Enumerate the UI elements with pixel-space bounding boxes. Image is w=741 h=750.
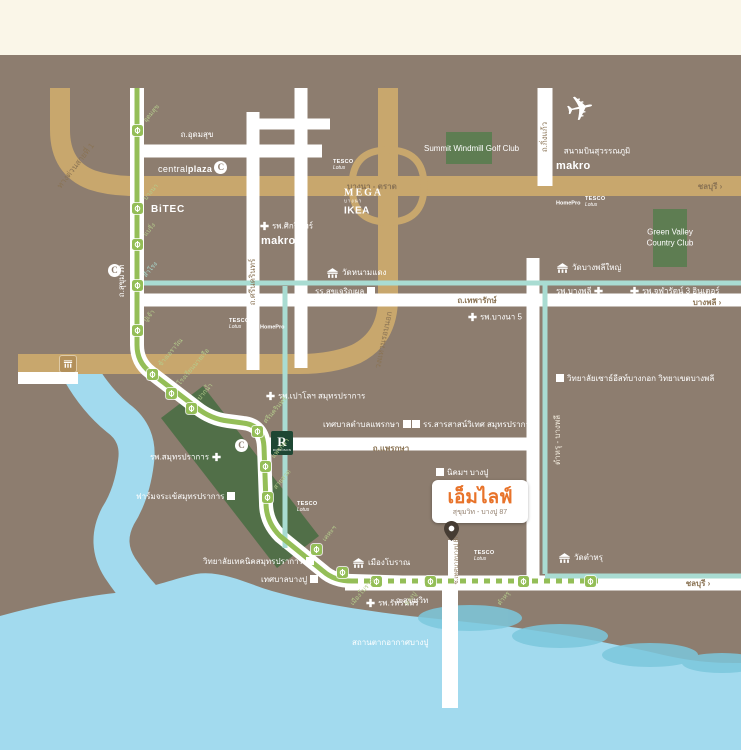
- project-location-pin: [444, 521, 459, 546]
- bangpu-recreation-center: สถานตากอากาศบางปู: [352, 639, 428, 647]
- cross-icon: [260, 222, 269, 231]
- sukjaroenphol-school-label: รร.สุขเจริญผล: [315, 288, 364, 296]
- bts-station-label: สำโรง: [143, 261, 159, 279]
- chularat3-inter-hospital-label: รพ.จุฬารัตน์ 3 อินเตอร์: [642, 287, 720, 295]
- bts-logo-icon: [264, 494, 271, 501]
- wat-namdaeng-label: วัดหนามแดง: [342, 269, 386, 277]
- square-icon: [403, 420, 411, 430]
- bts-logo-icon: [254, 428, 261, 435]
- square-icon: [367, 287, 375, 297]
- phraksa-road-label: ถ.แพรกษา: [373, 445, 409, 453]
- bts-station-label: เคหะฯ: [322, 525, 339, 543]
- tesco-bangpu: TESCOLotus: [474, 551, 494, 562]
- green-valley-area-label: Country Club: [647, 239, 694, 248]
- southeast-bangkok-college: วิทยาลัยเซาธ์อีสท์บางกอก วิทยาเขตบางพลี: [556, 374, 714, 384]
- temple-icon: [558, 553, 571, 563]
- mega-bangna: MEGAบางนาIKEA: [344, 188, 383, 216]
- bitec: BiTEC: [151, 200, 185, 216]
- bts-logo-icon: [188, 405, 195, 412]
- wat-bangphli-yai-label: วัดบางพลีใหญ่: [572, 264, 621, 272]
- bts-logo-icon: [134, 282, 141, 289]
- bts-station-marker: [132, 203, 143, 214]
- paolo-samutprakan-hospital-label: รพ.เปาโลฯ สมุทรปราการ: [278, 392, 365, 400]
- bts-logo-icon: [149, 371, 156, 378]
- bts-logo-icon: [520, 578, 527, 585]
- wat-tamru-label: วัดตำหรุ: [574, 554, 603, 562]
- bangphli-sign: บางพลี ›: [693, 299, 722, 307]
- bts-station-label: อุดมสุข: [143, 104, 161, 124]
- tesco-bangphli: TESCOLotus: [585, 197, 605, 208]
- bts-logo-icon: [313, 546, 320, 553]
- kingkaew-road-label: ถ.กิ่งแก้ว: [541, 122, 549, 152]
- bts-station-marker: [425, 576, 436, 587]
- central-samrong: C: [106, 263, 121, 279]
- square-icon: [436, 468, 444, 478]
- srinakarin-road-label: ถ.ศรีนครินทร์: [249, 259, 257, 306]
- temple-icon: [352, 558, 365, 568]
- makro-kingkaew: makro: [556, 157, 591, 173]
- bangpu-recreation-center-label: สถานตากอากาศบางปู: [352, 639, 428, 647]
- central-samutprakan: C: [233, 438, 248, 454]
- crocodile-farm: ฟาร์มจระเข้สมุทรปราการ: [136, 492, 235, 502]
- bts-logo-icon: [134, 327, 141, 334]
- tesco-bangna: TESCOLotus: [333, 160, 353, 171]
- mueang-boran: เมืองโบราณ: [352, 558, 410, 568]
- cross-icon: [266, 392, 275, 401]
- temple-icon: [326, 268, 339, 278]
- chonburi-sign-expressway: ชลบุรี ›: [698, 183, 723, 191]
- bts-logo-icon: [262, 463, 269, 470]
- bts-station-marker: [262, 492, 273, 503]
- bts-logo-icon: [168, 390, 175, 397]
- samutprakan-technical-college-label: วิทยาลัยเทคนิคสมุทรปราการ: [203, 558, 303, 566]
- cross-icon: [366, 599, 375, 608]
- samutprakan-technical-college: วิทยาลัยเทคนิคสมุทรปราการ: [203, 557, 314, 567]
- green-valley-area-label: Green Valley: [647, 228, 693, 237]
- bts-station-marker: [132, 280, 143, 291]
- bts-station-label: ปู่เจ้า: [143, 309, 157, 324]
- tesco-srinakarin: TESCOLotus: [229, 319, 249, 330]
- sukjaroenphol-school: รร.สุขเจริญผล: [315, 287, 375, 297]
- sarasas-witaed-school-label: รร.สารสาสน์วิเทศ สมุทรปราการ: [423, 421, 534, 429]
- square-icon: [556, 374, 564, 384]
- mueang-boran-label: เมืองโบราณ: [368, 559, 410, 567]
- bts-station-marker: [252, 426, 263, 437]
- sikarin-hospital-label: รพ.ศิกรินทร์: [272, 222, 313, 230]
- wat-bangphli-yai: วัดบางพลีใหญ่: [556, 263, 621, 273]
- chularat3-inter-hospital: รพ.จุฬารัตน์ 3 อินเตอร์: [630, 287, 720, 296]
- bts-station-label: ศรีนครินทร์: [263, 396, 289, 425]
- expressway-1-label: ทางด่วนสายที่ 1: [56, 142, 96, 190]
- bangpu-industrial-estate-label: นิคมฯ บางปู: [447, 469, 488, 477]
- bts-station-marker: [132, 325, 143, 336]
- bts-station-label: แบริ่ง: [143, 223, 158, 239]
- bts-station-label: ตำหรุ: [497, 591, 512, 607]
- cross-icon: [594, 287, 603, 296]
- location-map: ถ.อุดมสุขบางนา - ตราดชลบุรี ›ถ.เทพารักษ์…: [0, 0, 741, 750]
- bangpu-municipality-label: เทศบาลบางปู: [261, 576, 307, 584]
- bts-logo-icon: [339, 569, 346, 576]
- summit-windmill-golf-club-label: Summit Windmill Golf Club: [424, 145, 519, 153]
- project-subtitle: สุขุมวิท - บางปู 87: [453, 509, 507, 516]
- bts-station-marker: [186, 403, 197, 414]
- bangphli-hospital-label: รพ.บางพลี: [556, 287, 591, 295]
- central-logo-icon: C: [235, 439, 248, 452]
- homepro-bangphli: HomePro: [556, 201, 580, 207]
- bts-station-marker: [260, 461, 271, 472]
- summit-windmill-golf-club: Summit Windmill Golf Club: [424, 145, 519, 153]
- tesco-sailuat: TESCOLotus: [297, 502, 317, 513]
- central-plaza-bangna: centralplazaC: [158, 160, 227, 176]
- bts-logo-icon: [134, 241, 141, 248]
- sikarin-hospital: รพ.ศิกรินทร์: [260, 222, 313, 231]
- bangna5-hospital: รพ.บางนา 5: [468, 313, 522, 322]
- bts-logo-icon: [134, 127, 141, 134]
- bts-station-marker: [585, 576, 596, 587]
- cross-icon: [630, 287, 639, 296]
- homepro-srinakarin: HomePro: [260, 325, 284, 331]
- bangphli-hospital: รพ.บางพลี: [556, 287, 603, 296]
- bts-station-label: สายลวด: [273, 469, 293, 491]
- bts-station-marker: [147, 369, 158, 380]
- phraksa-municipality-label: เทศบาลตำบลแพรกษา: [323, 421, 400, 429]
- bts-logo-icon: [427, 578, 434, 585]
- bts-station-marker: [337, 567, 348, 578]
- bts-station-marker: [166, 388, 177, 399]
- tamru-bangphli-road-label: ตำหรุ - บางพลี: [554, 415, 562, 465]
- bts-station-marker: [518, 576, 529, 587]
- wat-namdaeng: วัดหนามแดง: [326, 268, 386, 278]
- bts-station-marker: [132, 239, 143, 250]
- udomsuk-road-label: ถ.อุดมสุข: [181, 131, 214, 139]
- project-name: เอ็มไลฟ์: [447, 488, 512, 507]
- outer-ring-road-label: วงแหวนรอบนอก: [374, 311, 394, 369]
- airport-label: สนามบินสุวรรณภูมิ: [564, 145, 631, 158]
- bangpu-industrial-estate: นิคมฯ บางปู: [436, 468, 488, 478]
- sarasas-witaed-school: รร.สารสาสน์วิเทศ สมุทรปราการ: [412, 420, 534, 430]
- bts-station-label: ปากน้ำ: [197, 383, 215, 402]
- cross-icon: [212, 453, 221, 462]
- central-logo-icon: C: [108, 264, 121, 277]
- bts-logo-icon: [587, 578, 594, 585]
- toll-gate-icon: [60, 356, 76, 372]
- bts-station-label: โรงเรียนนายเรือ: [177, 348, 211, 387]
- temple-icon: [556, 263, 569, 273]
- wat-tamru: วัดตำหรุ: [558, 553, 603, 563]
- samutprakan-hospital: รพ.สมุทรปราการ: [150, 453, 221, 462]
- chonburi-sign-sukhumvit: ชลบุรี ›: [686, 580, 711, 588]
- square-icon: [310, 575, 318, 585]
- bts-logo-icon: [134, 205, 141, 212]
- southeast-bangkok-college-label: วิทยาลัยเซาธ์อีสท์บางกอก วิทยาเขตบางพลี: [567, 375, 714, 383]
- bts-station-marker: [132, 125, 143, 136]
- bangna5-hospital-label: รพ.บางนา 5: [480, 313, 522, 321]
- crocodile-farm-label: ฟาร์มจระเข้สมุทรปราการ: [136, 493, 224, 501]
- square-icon: [306, 557, 314, 567]
- thepharak-road-label: ถ.เทพารักษ์: [457, 297, 496, 305]
- makro-srinagarindra: makro: [261, 232, 296, 248]
- square-icon: [227, 492, 235, 502]
- central-logo-icon: C: [214, 161, 227, 174]
- map-labels-layer: ถ.อุดมสุขบางนา - ตราดชลบุรี ›ถ.เทพารักษ์…: [0, 0, 741, 750]
- bts-station-label: ช้างเอราวัณ: [158, 338, 185, 368]
- square-icon: [412, 420, 420, 430]
- project-logo-card: เอ็มไลฟ์ สุขุมวิท - บางปู 87: [432, 480, 528, 523]
- bts-station-marker: [311, 544, 322, 555]
- samutprakan-hospital-label: รพ.สมุทรปราการ: [150, 453, 209, 461]
- cross-icon: [468, 313, 477, 322]
- phraksa-municipality: เทศบาลตำบลแพรกษา: [323, 420, 411, 430]
- bangpu-municipality: เทศบาลบางปู: [261, 575, 318, 585]
